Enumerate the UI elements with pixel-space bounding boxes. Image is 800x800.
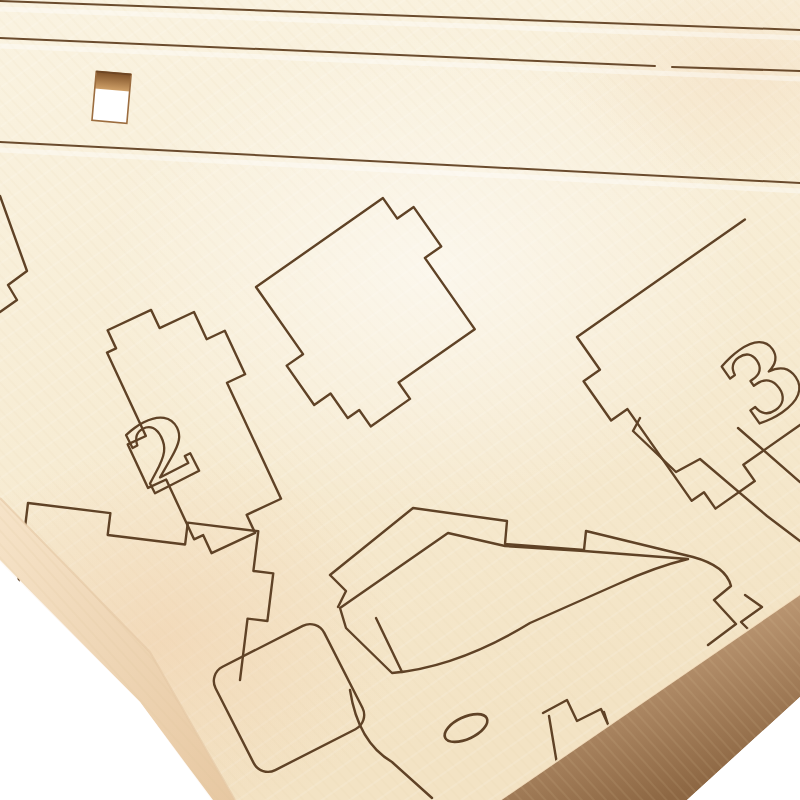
sheet-photo: 2 3 — [0, 0, 800, 800]
rect-cutout-hole — [92, 72, 131, 124]
product-photo: 2 3 — [0, 0, 800, 800]
wood-highlight-center — [100, 20, 760, 520]
